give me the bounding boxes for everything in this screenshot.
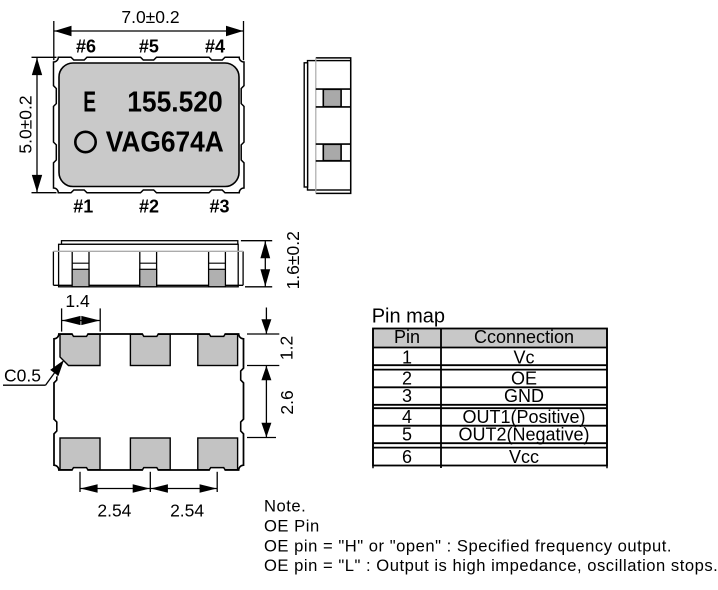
svg-text:OE pin = "H" or "open" : Speci: OE pin = "H" or "open" : Specified frequ…	[264, 536, 672, 555]
svg-text:1.2: 1.2	[277, 336, 297, 360]
svg-text:#4: #4	[205, 37, 225, 57]
svg-text:155.520: 155.520	[127, 86, 223, 118]
svg-text:OE pin = "L" : Output is high: OE pin = "L" : Output is high impedance,…	[264, 556, 718, 575]
svg-text:1.6±0.2: 1.6±0.2	[283, 231, 303, 289]
svg-text:6: 6	[402, 447, 412, 467]
svg-text:Vc: Vc	[513, 347, 534, 367]
svg-text:1: 1	[402, 347, 412, 367]
svg-text:Vcc: Vcc	[509, 447, 539, 467]
svg-text:C0.5: C0.5	[4, 366, 41, 386]
svg-text:2.6: 2.6	[277, 390, 297, 414]
svg-text:#6: #6	[76, 37, 96, 57]
svg-text:#1: #1	[73, 197, 93, 217]
svg-text:Pin: Pin	[394, 327, 420, 347]
svg-text:OE Pin: OE Pin	[264, 516, 320, 535]
svg-text:5.0±0.2: 5.0±0.2	[15, 95, 35, 153]
svg-text:2.54: 2.54	[97, 501, 131, 521]
svg-text:Pin map: Pin map	[372, 305, 445, 327]
svg-text:7.0±0.2: 7.0±0.2	[121, 7, 179, 27]
svg-text:#3: #3	[209, 197, 229, 217]
svg-text:E: E	[83, 86, 96, 118]
svg-text:#5: #5	[139, 37, 159, 57]
svg-text:OUT2(Negative): OUT2(Negative)	[458, 424, 589, 444]
svg-text:Cconnection: Cconnection	[474, 327, 574, 347]
svg-text:GND: GND	[504, 386, 544, 406]
svg-text:5: 5	[402, 424, 412, 444]
svg-text:Note.: Note.	[264, 496, 306, 515]
svg-text:2.54: 2.54	[170, 501, 204, 521]
svg-text:3: 3	[402, 386, 412, 406]
svg-text:1.4: 1.4	[65, 291, 90, 311]
svg-text:VAG674A: VAG674A	[106, 127, 224, 159]
svg-text:#2: #2	[139, 197, 159, 217]
